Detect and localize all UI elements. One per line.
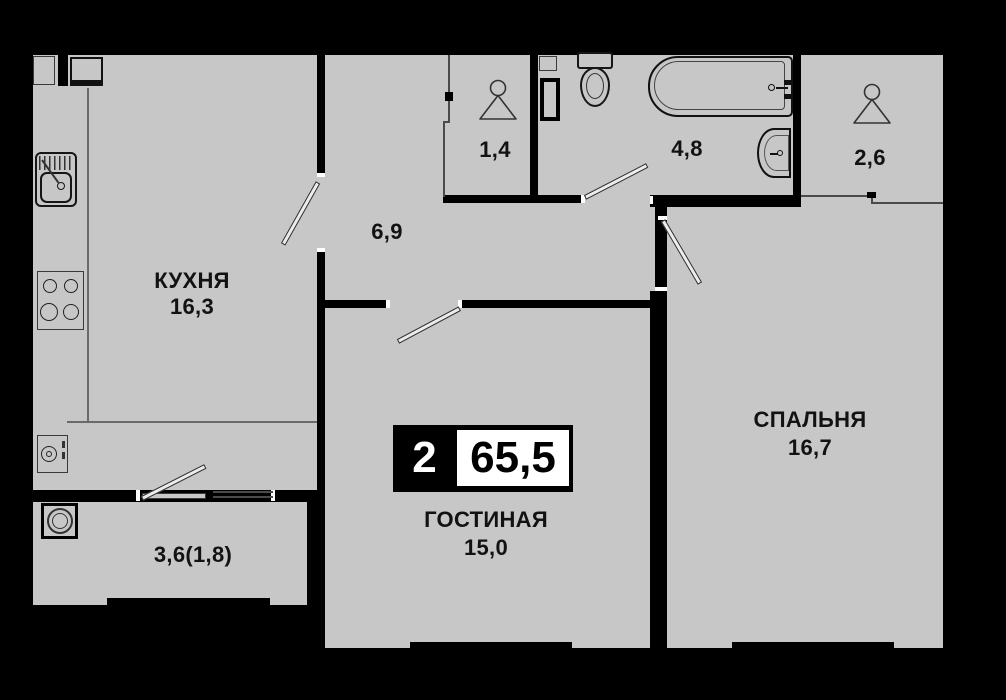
balcony-window-line bbox=[213, 491, 273, 493]
wall bbox=[650, 195, 801, 207]
toilet-bowl-inner bbox=[586, 73, 604, 99]
wardrobe-area: 1,4 bbox=[445, 139, 545, 161]
bedroom-area: 16,7 bbox=[720, 437, 900, 459]
burner bbox=[63, 304, 79, 320]
apartment-badge: 2 65,5 bbox=[393, 425, 573, 492]
closet-area: 2,6 bbox=[820, 147, 920, 169]
hanger-icon bbox=[846, 82, 894, 128]
kitchen-area: 16,3 bbox=[112, 296, 272, 318]
balcony-area: 3,6(1,8) bbox=[103, 544, 283, 566]
washbasin-tap bbox=[770, 153, 778, 155]
bathtub-faucet bbox=[776, 87, 788, 89]
sink-drain bbox=[57, 182, 65, 190]
closet-floor bbox=[801, 55, 943, 203]
wall bbox=[317, 252, 325, 648]
kitchen-label: КУХНЯ bbox=[112, 270, 272, 292]
wall bbox=[275, 490, 323, 501]
wall bbox=[530, 55, 538, 203]
burner bbox=[40, 303, 58, 321]
total-area: 65,5 bbox=[457, 431, 569, 485]
vent-duct-icon bbox=[70, 57, 103, 86]
bathtub-faucet bbox=[784, 80, 791, 85]
bathtub-faucet bbox=[784, 94, 791, 99]
hanger-icon bbox=[472, 78, 520, 124]
hallway-area: 6,9 bbox=[337, 221, 437, 243]
wall bbox=[317, 55, 325, 177]
boiler-ring-inner bbox=[52, 513, 68, 529]
balcony-window-sill bbox=[107, 598, 270, 606]
vent-duct-icon bbox=[539, 56, 557, 71]
washer-controls bbox=[62, 441, 65, 448]
vent-duct-icon bbox=[33, 56, 55, 85]
burner bbox=[43, 279, 57, 293]
wall-cap bbox=[317, 173, 325, 177]
living-area: 15,0 bbox=[396, 537, 576, 559]
washing-machine-icon bbox=[37, 435, 68, 473]
bathroom-area: 4,8 bbox=[637, 138, 737, 160]
wardrobe-partition-line bbox=[448, 55, 450, 123]
burner bbox=[64, 279, 78, 293]
wall-cap bbox=[650, 196, 653, 204]
wall bbox=[443, 195, 538, 203]
washer-door-inner bbox=[46, 451, 52, 457]
hallway-floor bbox=[325, 195, 655, 308]
kitchen-counter-line bbox=[67, 421, 317, 423]
wall-cap bbox=[655, 287, 667, 291]
wall bbox=[793, 55, 801, 197]
wall-cap bbox=[317, 248, 325, 252]
wall bbox=[33, 490, 140, 501]
living-window-sill bbox=[410, 642, 572, 649]
closet-zone-line bbox=[801, 195, 873, 197]
wall bbox=[650, 291, 667, 648]
floor-plan: 2 65,5 КУХНЯ 16,3 6,9 1,4 4,8 2,6 СПАЛЬН… bbox=[0, 0, 1006, 700]
stove-icon bbox=[37, 271, 84, 330]
balcony-window-line bbox=[213, 496, 273, 498]
wall-cap bbox=[136, 490, 140, 501]
bedroom-label: СПАЛЬНЯ bbox=[720, 409, 900, 431]
wall bbox=[538, 195, 585, 203]
wall-cap bbox=[386, 300, 390, 308]
room-count: 2 bbox=[393, 431, 456, 485]
vent-duct-icon bbox=[58, 55, 68, 86]
living-label: ГОСТИНАЯ bbox=[396, 509, 576, 531]
closet-zone-line bbox=[871, 202, 943, 204]
bathtub-icon bbox=[648, 56, 793, 117]
bathtub-inner bbox=[654, 61, 785, 110]
wall bbox=[458, 300, 652, 308]
wall bbox=[325, 300, 390, 308]
partition-tick bbox=[445, 92, 453, 101]
total-area-box: 65,5 bbox=[457, 430, 569, 486]
bathtub-faucet bbox=[768, 84, 775, 91]
washbasin-icon bbox=[757, 128, 791, 178]
kitchen-door-threshold bbox=[317, 177, 325, 252]
boiler-icon bbox=[41, 503, 78, 539]
bedroom-window-sill bbox=[732, 642, 894, 649]
closet-zone-tick bbox=[867, 192, 876, 198]
washer-controls bbox=[62, 452, 65, 459]
vent-duct-icon bbox=[540, 78, 560, 121]
wardrobe-floor bbox=[443, 55, 532, 196]
kitchen-counter-line bbox=[87, 88, 89, 422]
